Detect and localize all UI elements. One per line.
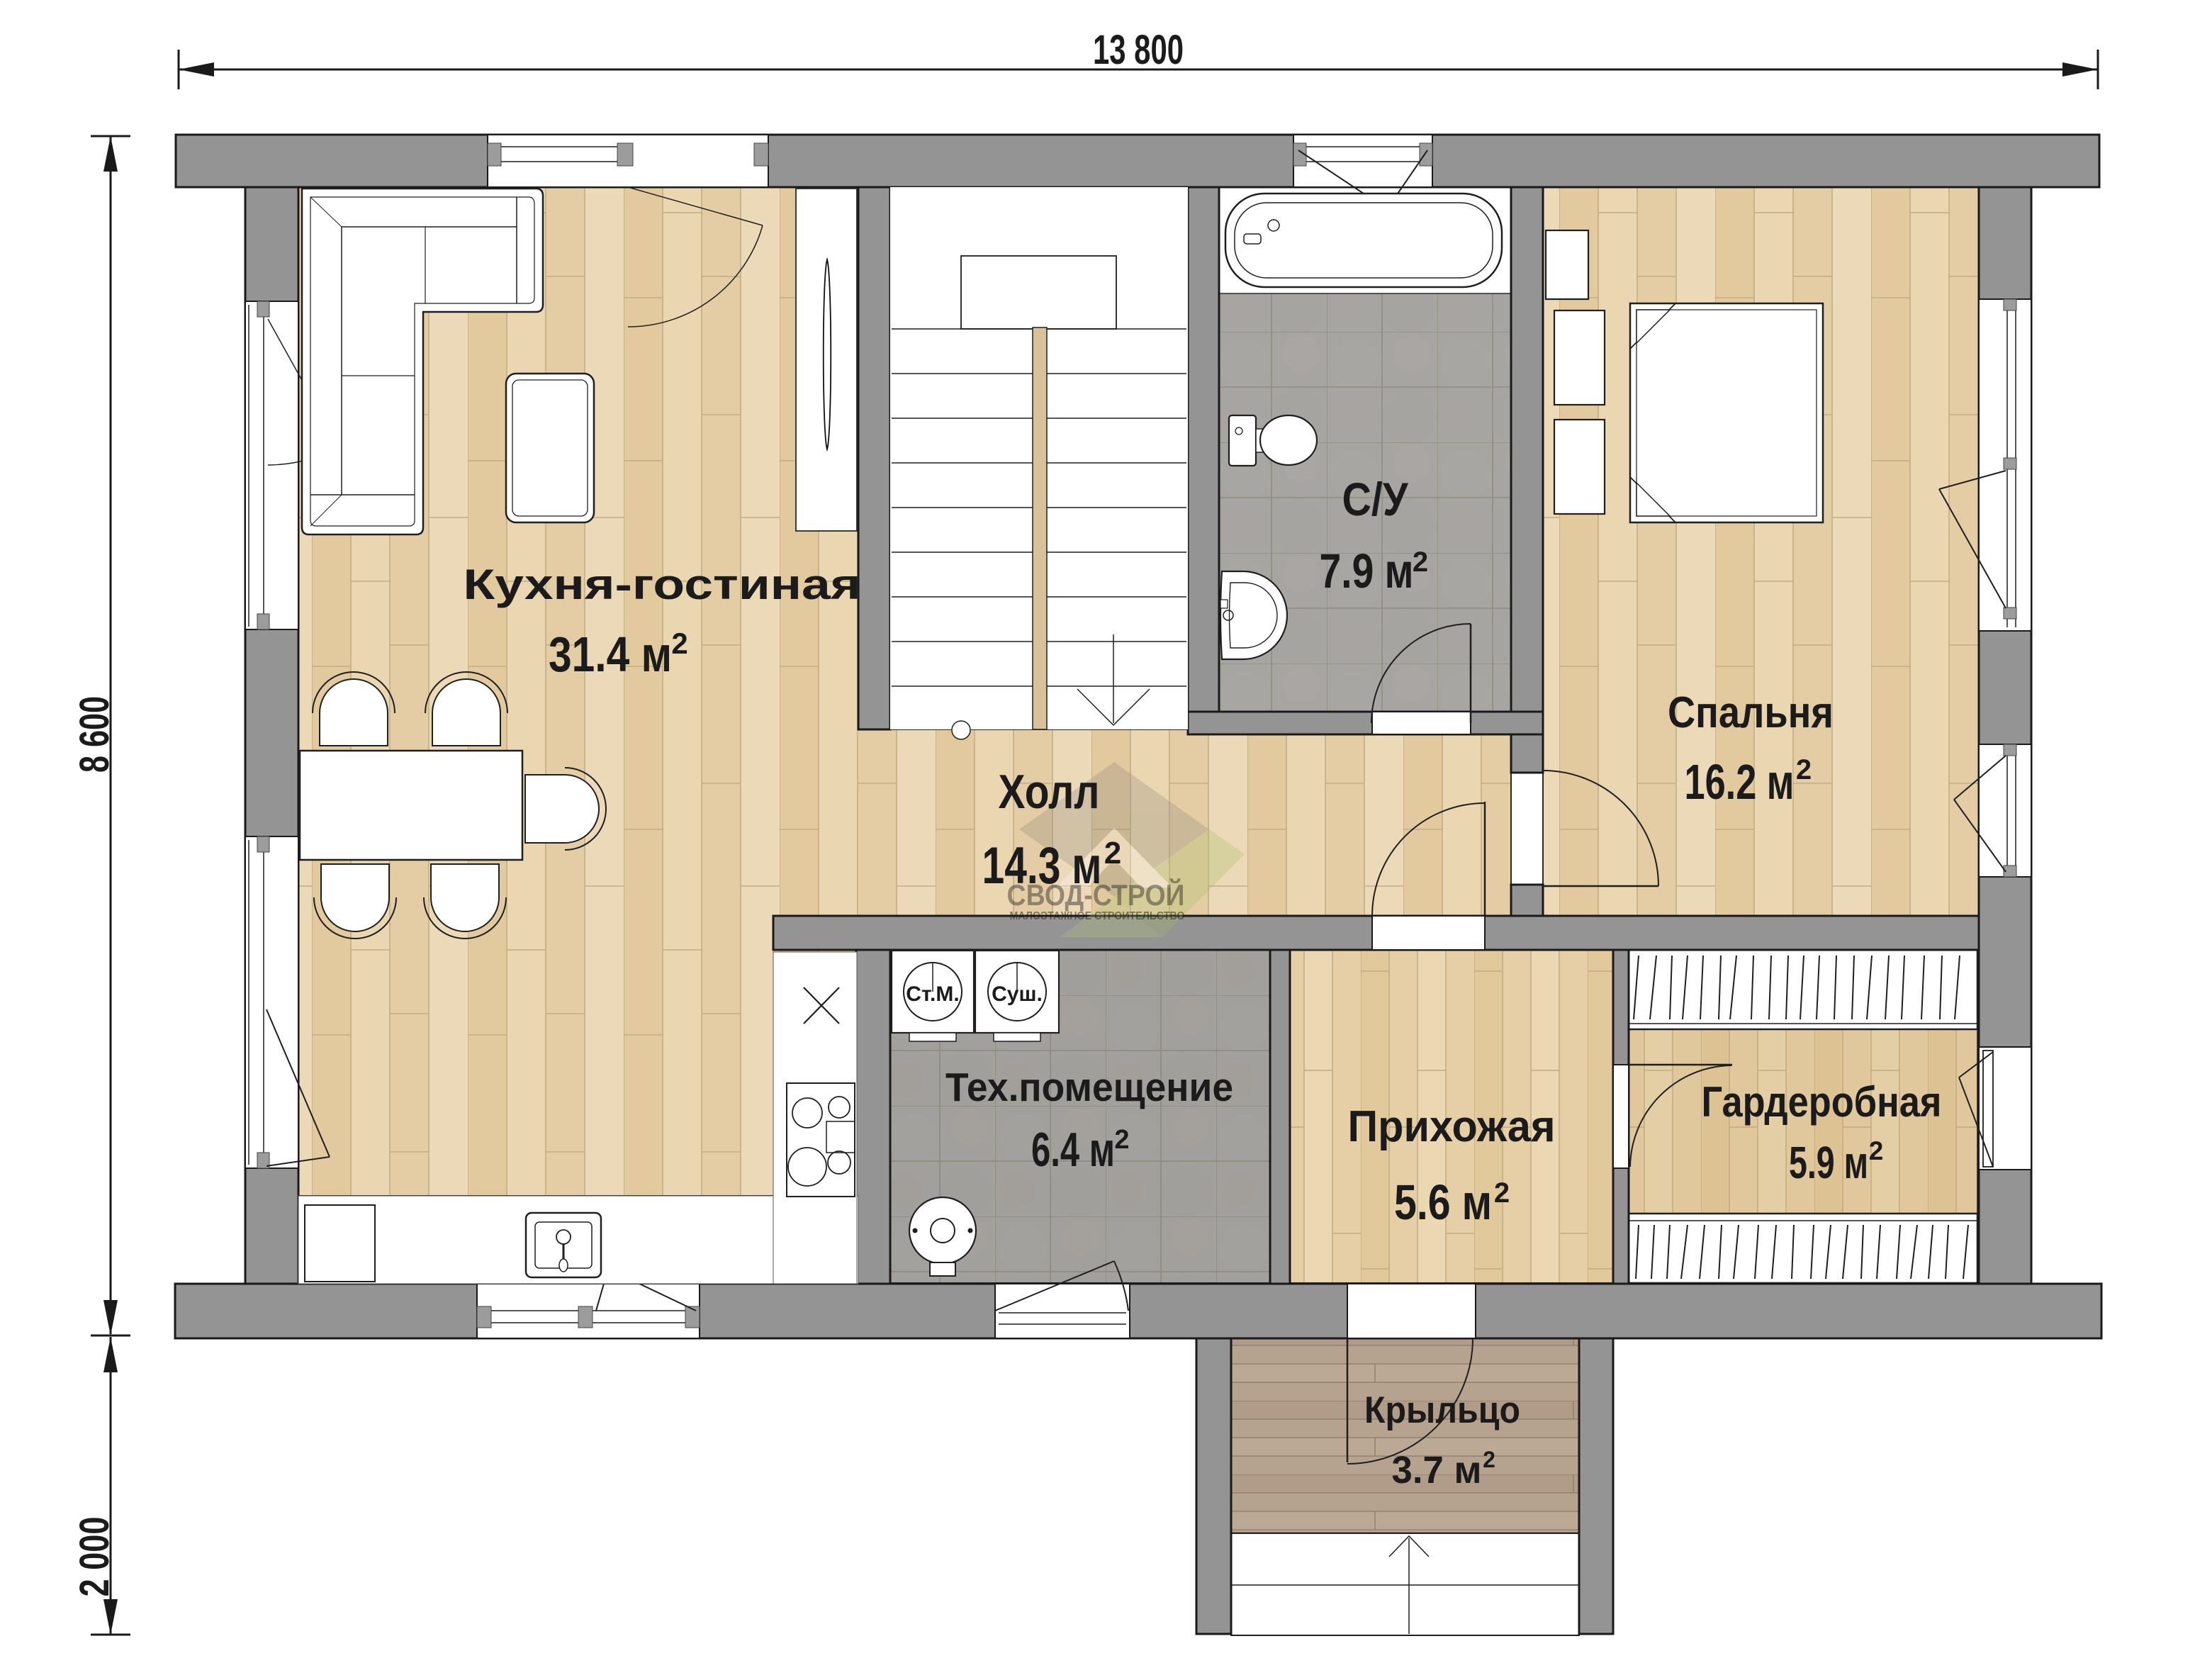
svg-text:13 800: 13 800 xyxy=(1093,27,1184,73)
svg-text:2: 2 xyxy=(1104,836,1121,870)
svg-text:2: 2 xyxy=(671,627,687,660)
svg-text:Гардеробная: Гардеробная xyxy=(1702,1078,1942,1126)
svg-text:Крыльцо: Крыльцо xyxy=(1364,1389,1520,1431)
svg-text:2 000: 2 000 xyxy=(72,1517,118,1597)
svg-text:5.6 м: 5.6 м xyxy=(1394,1175,1492,1230)
svg-text:3.7 м: 3.7 м xyxy=(1392,1449,1482,1491)
svg-text:МАЛОЭТАЖНОЕ СТРОИТЕЛЬСТВО: МАЛОЭТАЖНОЕ СТРОИТЕЛЬСТВО xyxy=(1010,910,1185,922)
svg-text:2: 2 xyxy=(1869,1136,1884,1165)
svg-text:7.9 м: 7.9 м xyxy=(1320,544,1414,598)
svg-text:2: 2 xyxy=(1413,547,1428,578)
svg-text:Ст.М.: Ст.М. xyxy=(906,982,959,1006)
svg-text:16.2 м: 16.2 м xyxy=(1685,754,1795,810)
svg-text:8 600: 8 600 xyxy=(72,696,118,773)
svg-text:14.3 м: 14.3 м xyxy=(982,837,1102,895)
svg-text:2: 2 xyxy=(1483,1447,1495,1472)
svg-text:Прихожая: Прихожая xyxy=(1348,1102,1556,1151)
svg-text:2: 2 xyxy=(1796,754,1812,785)
svg-text:Кухня-гостиная: Кухня-гостиная xyxy=(464,561,861,608)
svg-text:31.4 м: 31.4 м xyxy=(549,627,672,682)
svg-text:Спальня: Спальня xyxy=(1668,688,1834,737)
svg-text:Суш.: Суш. xyxy=(992,982,1043,1006)
svg-text:6.4 м: 6.4 м xyxy=(1031,1123,1115,1177)
svg-text:С/У: С/У xyxy=(1342,473,1409,525)
svg-text:Тех.помещение: Тех.помещение xyxy=(945,1065,1233,1110)
svg-text:5.9 м: 5.9 м xyxy=(1789,1137,1868,1188)
svg-text:2: 2 xyxy=(1494,1177,1510,1209)
svg-text:Холл: Холл xyxy=(999,765,1100,819)
svg-text:2: 2 xyxy=(1114,1125,1129,1155)
